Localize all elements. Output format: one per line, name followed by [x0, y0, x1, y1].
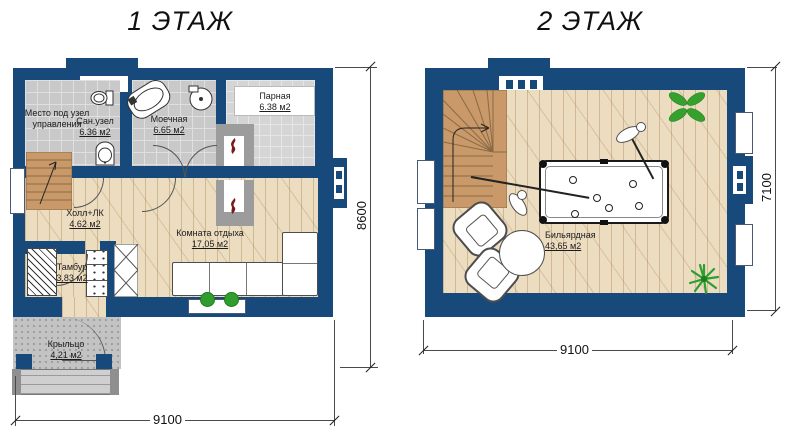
flame-icon — [229, 138, 240, 159]
flue-square — [530, 80, 537, 89]
cabinet-x-unit — [114, 244, 138, 302]
room-area: 3,83 м2 — [46, 273, 98, 284]
room-label-rest: Комната отдыха 17,05 м2 — [168, 228, 252, 250]
extension-line — [340, 367, 378, 368]
billiard-ball — [593, 194, 601, 202]
billiard-ball — [569, 176, 577, 184]
plant-icon — [687, 262, 721, 301]
room-name: Холл+ЛК — [66, 208, 104, 218]
floor1-left-window — [10, 168, 25, 214]
room-area: 17,05 м2 — [168, 239, 252, 250]
sofa-horizontal — [172, 262, 284, 296]
floor2-left-window — [417, 208, 435, 250]
staircase-floor2 — [443, 90, 507, 213]
room-label-tambur: Тамбур 3,83 м2 — [46, 262, 98, 284]
sink-icon — [94, 136, 116, 167]
room-label-parnaya: Парная 6.38 м2 — [242, 91, 308, 113]
billiard-ball — [605, 204, 613, 212]
room-area: 4.62 м2 — [54, 219, 116, 230]
room-area: 43,65 м2 — [545, 241, 621, 252]
room-label-sanuzel: Сан.узел 6.36 м2 — [70, 116, 120, 138]
table-pocket — [539, 160, 547, 168]
floor2-plan: Бильярдная 43,65 м2 7100 9100 — [415, 58, 795, 368]
table-pocket — [661, 216, 669, 224]
armchair-cushion — [464, 213, 499, 248]
porch-steps — [18, 369, 112, 395]
dim-label-floor2-height: 7100 — [759, 173, 774, 202]
floor1-right-bump-window — [333, 166, 345, 200]
floorplan-sheet: 1 ЭТАЖ 2 ЭТАЖ — [0, 0, 800, 439]
floor1-plan: Место под узел управления Сан.узел 6.36 … — [10, 58, 385, 436]
window-pane — [737, 171, 743, 179]
floor2-title: 2 ЭТАЖ — [480, 6, 700, 37]
window-pane — [737, 183, 743, 191]
room-label-porch: Крыльцо 4,21 м2 — [36, 339, 96, 361]
room-label-moechnaya: Моечная 6.65 м2 — [138, 114, 200, 136]
room-label-hall: Холл+ЛК 4.62 м2 — [54, 208, 116, 230]
sofa-vertical — [282, 232, 318, 296]
room-name: Комната отдыха — [176, 228, 244, 238]
room-area: 6.65 м2 — [138, 125, 200, 136]
plant-icon — [224, 292, 239, 307]
room-label-billiard: Бильярдная 43,65 м2 — [545, 230, 621, 252]
porch-step-rail — [110, 369, 119, 395]
porch-pillar — [96, 354, 112, 369]
dim-label-floor1-height: 8600 — [354, 201, 369, 230]
table-pocket-mid — [600, 220, 608, 225]
floor2-right-window — [735, 112, 753, 154]
flue-square — [518, 80, 525, 89]
floor2-left-window — [417, 160, 435, 204]
extension-line — [334, 320, 335, 426]
billiard-ball — [629, 180, 637, 188]
window-pane — [336, 185, 342, 193]
floor1-title: 1 ЭТАЖ — [55, 6, 305, 37]
window-pane — [336, 171, 342, 179]
table-pocket — [539, 216, 547, 224]
room-area: 6.36 м2 — [70, 127, 120, 138]
round-table — [499, 230, 545, 276]
flame-icon — [229, 198, 240, 219]
porch-door-opening — [62, 297, 106, 317]
flue-square — [506, 80, 513, 89]
room-name: Сан.узел — [76, 116, 114, 126]
floor2-right-window — [735, 224, 753, 266]
porch-pillar — [16, 354, 32, 369]
extension-line — [747, 310, 777, 311]
player-figure-head — [517, 190, 527, 200]
chimney-detail — [733, 166, 746, 194]
plant-icon — [200, 292, 215, 307]
washbasin-icon — [186, 84, 214, 117]
room-name: Моечная — [151, 114, 188, 124]
room-name: Бильярдная — [545, 230, 596, 240]
billiard-ball — [571, 210, 579, 218]
plant-icon — [667, 90, 707, 129]
porch-step-rail — [12, 369, 21, 395]
table-pocket-mid — [600, 159, 608, 164]
room-name: Тамбур — [57, 262, 88, 272]
player-figure-head — [636, 122, 646, 132]
floor2-top-chimney-wall — [488, 58, 550, 72]
dim-label-floor2-width: 9100 — [557, 342, 592, 357]
room-area: 4,21 м2 — [36, 350, 96, 361]
billiard-ball — [635, 202, 643, 210]
room-name: Парная — [259, 91, 290, 101]
staircase-floor1 — [26, 152, 72, 215]
dim-line-floor2-height — [775, 66, 776, 312]
dim-line-floor1-height — [370, 66, 371, 368]
dim-label-floor1-width: 9100 — [150, 412, 185, 427]
floor1-top-chimney-wall — [66, 58, 138, 72]
room-name: Крыльцо — [48, 339, 85, 349]
table-pocket — [661, 160, 669, 168]
toilet-icon — [90, 88, 114, 113]
room-area: 6.38 м2 — [242, 102, 308, 113]
